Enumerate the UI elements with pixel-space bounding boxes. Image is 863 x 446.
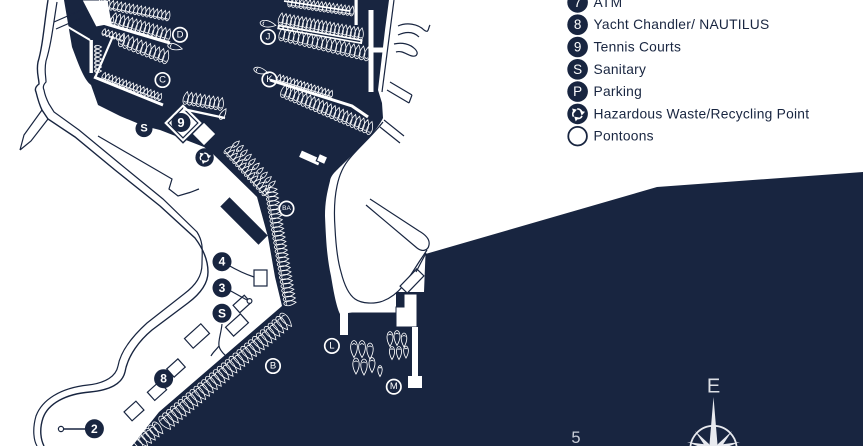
svg-text:P: P (573, 84, 582, 99)
svg-text:K: K (266, 74, 273, 85)
svg-text:M: M (390, 381, 398, 392)
svg-text:5: 5 (571, 429, 580, 446)
svg-text:Yacht Chandler/ NAUTILUS: Yacht Chandler/ NAUTILUS (594, 17, 770, 32)
svg-text:8: 8 (160, 372, 167, 386)
svg-text:L: L (329, 340, 334, 351)
svg-text:3: 3 (219, 281, 226, 295)
svg-text:D: D (177, 29, 184, 40)
svg-text:B: B (270, 361, 276, 372)
svg-text:Sanitary: Sanitary (594, 62, 647, 77)
svg-text:ATM: ATM (594, 0, 623, 10)
svg-text:2: 2 (91, 422, 98, 436)
svg-text:8: 8 (574, 17, 582, 32)
svg-text:7: 7 (574, 0, 582, 10)
svg-text:S: S (573, 62, 582, 77)
svg-text:Hazardous Waste/Recycling Poin: Hazardous Waste/Recycling Point (594, 106, 810, 121)
svg-text:E: E (707, 376, 720, 398)
svg-text:Pontoons: Pontoons (594, 129, 654, 144)
svg-text:J: J (266, 31, 271, 42)
svg-text:9: 9 (177, 115, 184, 130)
svg-text:S: S (140, 123, 147, 135)
svg-text:4: 4 (219, 255, 226, 269)
svg-text:BA: BA (282, 205, 291, 212)
svg-text:Tennis Courts: Tennis Courts (594, 40, 682, 55)
svg-text:S: S (218, 306, 226, 320)
svg-text:C: C (159, 75, 166, 86)
svg-text:9: 9 (574, 40, 582, 55)
svg-text:Parking: Parking (594, 84, 643, 99)
